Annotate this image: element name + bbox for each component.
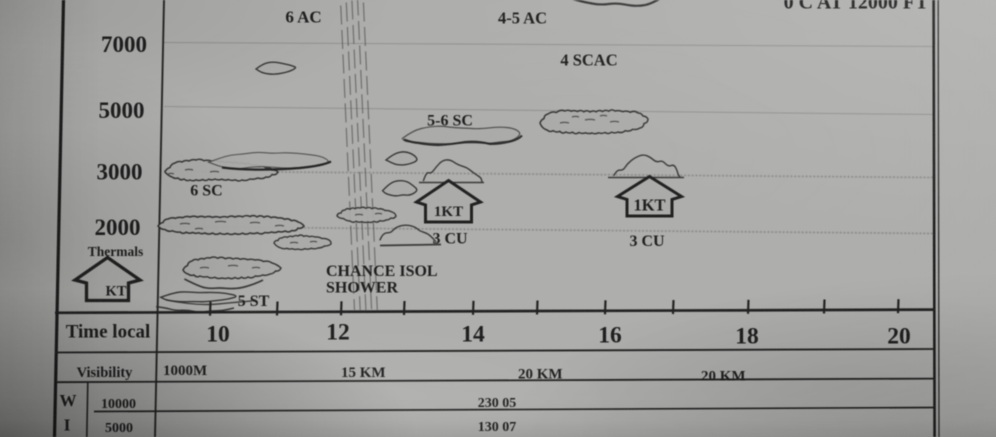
svg-text:5000: 5000 — [99, 98, 145, 123]
svg-text:I: I — [64, 416, 71, 435]
svg-text:4-5 AC: 4-5 AC — [498, 9, 547, 28]
svg-text:2000: 2000 — [95, 215, 141, 240]
svg-text:W: W — [60, 391, 77, 410]
svg-text:10: 10 — [206, 322, 230, 348]
svg-text:1KT: 1KT — [633, 196, 665, 215]
svg-text:230 05: 230 05 — [478, 396, 517, 411]
svg-text:5 ST: 5 ST — [238, 293, 270, 310]
svg-text:CHANCE ISOL: CHANCE ISOL — [326, 263, 438, 280]
svg-text:0 C AT 12000 FT: 0 C AT 12000 FT — [784, 0, 929, 14]
svg-text:16: 16 — [598, 323, 622, 349]
svg-text:10000: 10000 — [101, 397, 136, 412]
svg-text:SHOWER: SHOWER — [326, 280, 398, 297]
svg-text:4 SCAC: 4 SCAC — [560, 51, 617, 70]
svg-text:Time local: Time local — [66, 322, 151, 343]
svg-text:Visibility: Visibility — [77, 365, 134, 381]
svg-text:20: 20 — [887, 324, 911, 350]
svg-text:130 07: 130 07 — [478, 420, 517, 435]
svg-text:6 AC: 6 AC — [285, 8, 321, 27]
svg-text:20 KM: 20 KM — [701, 369, 746, 385]
svg-text:7000: 7000 — [101, 32, 147, 57]
svg-text:1000M: 1000M — [163, 363, 207, 379]
svg-text:3 CU: 3 CU — [432, 231, 468, 248]
svg-text:5-6 SC: 5-6 SC — [427, 113, 473, 130]
svg-text:14: 14 — [461, 322, 485, 348]
svg-text:3 CU: 3 CU — [629, 233, 665, 250]
svg-text:3000: 3000 — [97, 160, 143, 185]
svg-text:18: 18 — [735, 324, 759, 350]
svg-text:20 KM: 20 KM — [518, 367, 563, 383]
svg-text:15 KM: 15 KM — [341, 365, 386, 381]
svg-text:Thermals: Thermals — [88, 244, 144, 259]
svg-text:1KT: 1KT — [434, 204, 463, 220]
svg-text:5000: 5000 — [105, 421, 133, 436]
svg-text:6 SC: 6 SC — [190, 183, 222, 200]
svg-text:KT: KT — [106, 284, 127, 300]
svg-text:12: 12 — [326, 320, 350, 346]
